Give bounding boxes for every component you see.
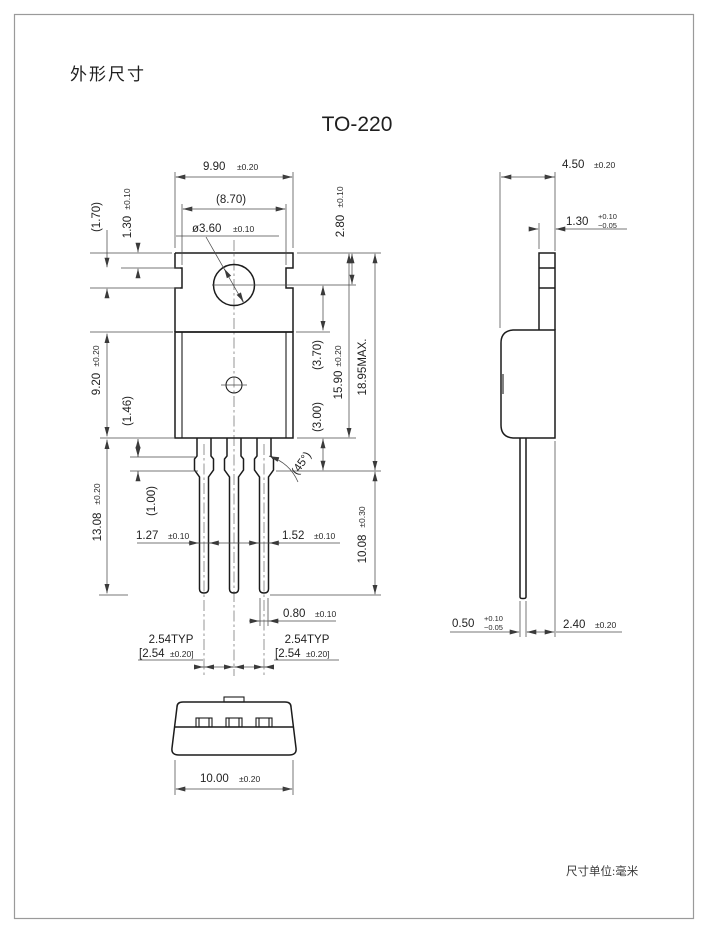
front-view: 9.90 ±0.20 (8.70) ø3.60 ±0.10 2.80 ±0.10… <box>90 161 381 676</box>
dim-lead-thickness-value: 0.50 <box>452 618 474 630</box>
dim-body-to-shoulder: (3.00) <box>312 402 324 432</box>
dim-body-width: (8.70) <box>216 194 246 206</box>
dim-overall-width-tol: ±0.20 <box>237 162 258 172</box>
dim-lead-width-left-value: 1.27 <box>136 530 158 542</box>
dim-hole-to-body: (3.70) <box>312 340 324 370</box>
dim-pitch-right-bracket-value: [2.54 <box>275 648 301 660</box>
dim-lead-tip-width-value: 0.80 <box>283 608 305 620</box>
front-dimension-lines <box>107 177 375 667</box>
dim-lead-thickness-tol-minus: −0.05 <box>484 623 503 632</box>
dim-tab-thickness-tol-minus: −0.05 <box>598 221 617 230</box>
dim-shoulder-length: (1.00) <box>146 486 158 516</box>
bottom-extension-lines <box>175 760 293 795</box>
dim-tab-step-value: 1.30 <box>122 216 134 238</box>
dim-pitch-right-bracket-tol: ±0.20] <box>306 649 330 659</box>
dim-lead-length-tol: ±0.20 <box>92 483 102 504</box>
dim-pitch-left-typ: 2.54TYP <box>149 634 194 646</box>
dim-overall-height-max: 18.95MAX. <box>357 339 369 396</box>
dim-pitch-right-typ: 2.54TYP <box>285 634 330 646</box>
side-outline <box>501 253 555 599</box>
unit-note: 尺寸单位:毫米 <box>566 864 639 878</box>
package-name: TO-220 <box>322 113 393 136</box>
dim-hole-diameter-value: ø3.60 <box>192 223 221 235</box>
dim-hole-diameter-tol: ±0.10 <box>233 224 254 234</box>
dim-body-thickness-tol: ±0.20 <box>595 620 616 630</box>
dim-lead-length-value: 13.08 <box>92 513 104 542</box>
dim-bottom-width-value: 10.00 <box>200 773 229 785</box>
page-title: 外形尺寸 <box>70 65 146 84</box>
side-extension-lines <box>450 172 627 637</box>
dim-pitch-left-bracket-tol: ±0.20] <box>170 649 194 659</box>
dim-lead-below-tol: ±0.30 <box>357 506 367 527</box>
dim-tab-thickness-tol-plus: +0.10 <box>598 212 617 221</box>
datasheet-page: 外形尺寸 TO-220 尺寸单位:毫米 <box>0 0 708 934</box>
dim-body-thickness-value: 2.40 <box>563 619 585 631</box>
dim-side-width-tol: ±0.20 <box>594 160 615 170</box>
dim-tab-to-hole-value: 2.80 <box>335 215 347 237</box>
dim-tab-thickness-value: 1.30 <box>566 216 588 228</box>
dim-body-height-value: 9.20 <box>91 373 103 395</box>
dim-notch-height: (1.70) <box>91 202 103 232</box>
page-border <box>15 15 694 919</box>
dim-tab-to-body-bottom-tol: ±0.20 <box>333 345 343 366</box>
bottom-dimension-labels: 10.00 ±0.20 <box>200 773 260 785</box>
bottom-outline <box>172 697 296 755</box>
dim-tab-to-hole-tol: ±0.10 <box>335 186 345 207</box>
dim-lead-width-right-tol: ±0.10 <box>314 531 335 541</box>
dim-side-width-value: 4.50 <box>562 159 584 171</box>
outline-drawing: 外形尺寸 TO-220 尺寸单位:毫米 <box>0 0 708 934</box>
dim-lead-below-value: 10.08 <box>357 535 369 564</box>
dim-lead-thickness-tol-plus: +0.10 <box>484 614 503 623</box>
dim-lead-tip-width-tol: ±0.10 <box>315 609 336 619</box>
dim-lead-width-right-value: 1.52 <box>282 530 304 542</box>
dim-tab-step-tol: ±0.10 <box>122 188 132 209</box>
side-dimension-labels: 4.50 ±0.20 1.30 +0.10 −0.05 0.50 +0.10 −… <box>452 159 617 632</box>
dim-lead-root: (1.46) <box>122 396 134 426</box>
dim-chamfer: (45°) <box>290 450 314 478</box>
bottom-pin-sections <box>196 718 272 727</box>
dim-lead-width-left-tol: ±0.10 <box>168 531 189 541</box>
bottom-view: 10.00 ±0.20 <box>172 697 296 795</box>
dim-tab-to-body-bottom-value: 15.90 <box>333 371 345 400</box>
dim-bottom-width-tol: ±0.20 <box>239 774 260 784</box>
dim-pitch-left-bracket-value: [2.54 <box>139 648 165 660</box>
dim-overall-width-value: 9.90 <box>203 161 225 173</box>
dim-body-height-tol: ±0.20 <box>91 345 101 366</box>
side-view: 4.50 ±0.20 1.30 +0.10 −0.05 0.50 +0.10 −… <box>450 159 627 637</box>
